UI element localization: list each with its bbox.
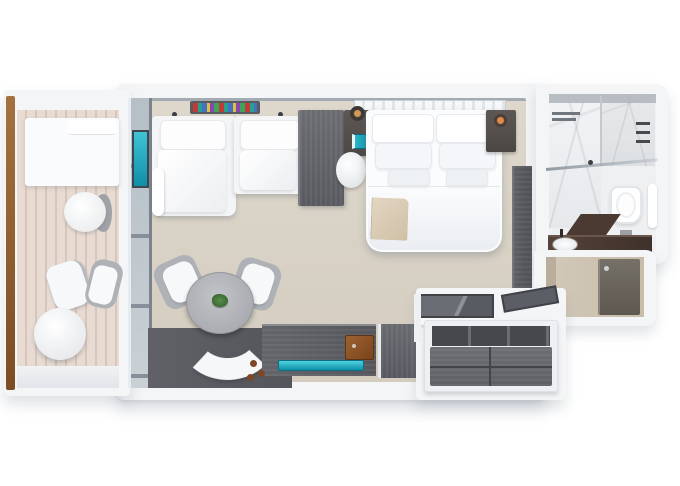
- floorplan-render: [0, 0, 680, 486]
- daybed-pillow: [68, 120, 116, 135]
- teal-tv-screen: [278, 360, 364, 371]
- sofa-chaise-cushion: [158, 150, 226, 212]
- balcony-bistro-table: [34, 308, 86, 360]
- glass-top-desk: [414, 294, 494, 318]
- bed-pillow-1: [372, 114, 434, 143]
- beige-throw-blanket: [370, 197, 408, 240]
- sofa-seat-cushion: [240, 150, 296, 190]
- book-shelf: [190, 101, 260, 114]
- shower-top-edge: [549, 94, 656, 103]
- books: [193, 103, 257, 112]
- towel-shelf-bar-2: [552, 118, 576, 121]
- media-cabinet: [298, 110, 344, 206]
- desk-side-panel: [414, 294, 421, 342]
- balcony-side-table: [64, 192, 106, 232]
- glass-partition-handle: [588, 160, 593, 165]
- towel-rail: [648, 184, 657, 228]
- shower-glass-divider: [600, 96, 602, 166]
- faucet: [560, 229, 563, 237]
- balcony-wood-railing: [6, 96, 15, 390]
- accent-pillow-1: [388, 169, 430, 186]
- pendant-lamp-right: [494, 114, 507, 127]
- teal-artwork: [132, 130, 149, 188]
- bed-pillow-3: [375, 143, 432, 169]
- sofa-armrest: [152, 168, 164, 216]
- round-stool: [336, 152, 366, 188]
- shower-fixtures: [636, 122, 650, 148]
- decor-dot-2: [258, 370, 265, 377]
- closet-opening: [432, 326, 550, 346]
- decor-dot-3: [247, 374, 254, 381]
- pendant-lamp-left: [350, 106, 365, 121]
- decor-dot-1: [250, 360, 257, 367]
- minibar-cabinet: [378, 324, 418, 378]
- accent-pillow-2: [446, 169, 488, 186]
- door-handle: [604, 266, 609, 271]
- sofa-back-pillow-left: [160, 120, 226, 150]
- amenity-box: [345, 335, 374, 360]
- sofa-back-pillow-right: [240, 120, 300, 150]
- balcony-floor-strip: [17, 366, 119, 388]
- potted-plant: [212, 294, 228, 307]
- towel-shelf-bar-1: [552, 112, 580, 115]
- closet-drawers: [430, 347, 552, 386]
- wardrobe: [512, 166, 532, 288]
- amenity-box-knob: [352, 344, 356, 348]
